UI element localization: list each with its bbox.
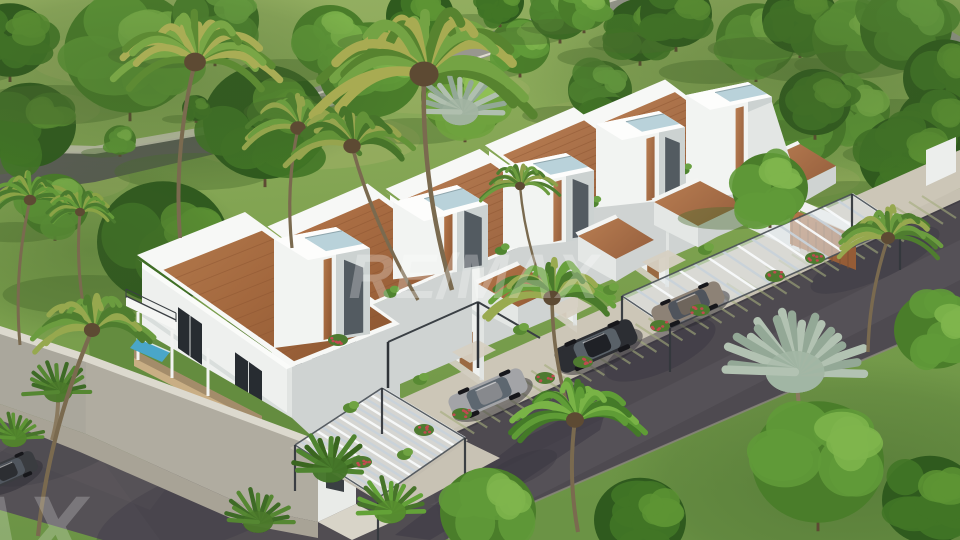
svg-text:RE/MAX: RE/MAX [343,242,606,311]
svg-text:MAX: MAX [0,477,98,540]
